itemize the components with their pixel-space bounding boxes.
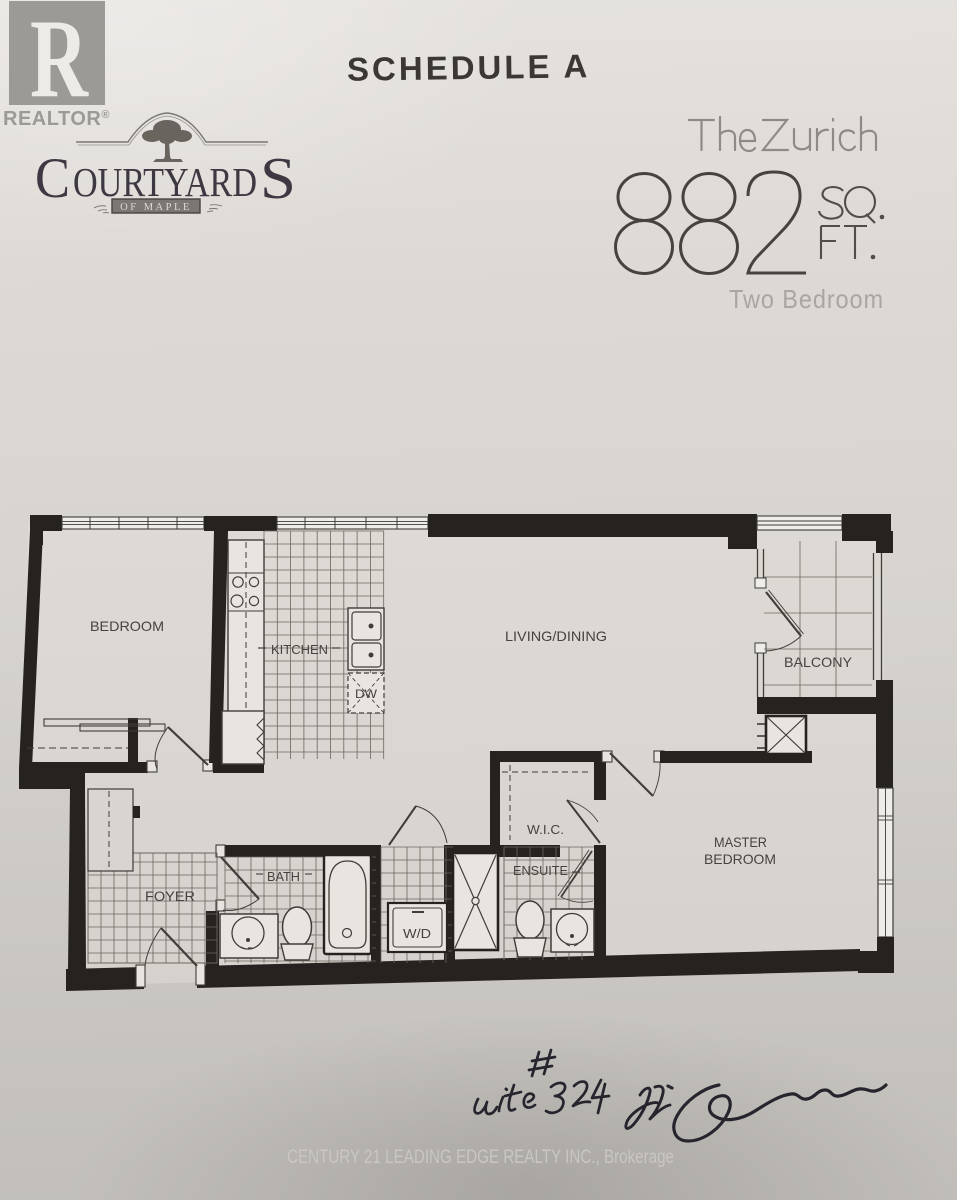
svg-text:BEDROOM: BEDROOM	[90, 618, 164, 634]
svg-text:W/D: W/D	[403, 927, 431, 941]
svg-text:C: C	[35, 147, 70, 210]
svg-text:OF MAPLE: OF MAPLE	[120, 202, 192, 213]
svg-text:CENTURY 21 LEADING EDGE REALTY: CENTURY 21 LEADING EDGE REALTY INC., Bro…	[287, 1146, 674, 1168]
svg-text:BEDROOM: BEDROOM	[704, 851, 776, 867]
svg-text:FOYER: FOYER	[145, 889, 195, 904]
svg-text:KITCHEN: KITCHEN	[271, 642, 328, 657]
svg-text:W.I.C.: W.I.C.	[527, 822, 564, 837]
svg-text:Two Bedroom: Two Bedroom	[729, 284, 884, 314]
svg-text:OURTYARD: OURTYARD	[73, 159, 257, 205]
svg-text:R: R	[30, 1, 89, 105]
svg-text:BATH: BATH	[267, 869, 300, 884]
svg-text:DW: DW	[355, 687, 378, 701]
svg-text:BALCONY: BALCONY	[784, 654, 853, 670]
svg-text:S: S	[260, 145, 296, 211]
svg-text:LIVING/DINING: LIVING/DINING	[505, 628, 607, 644]
svg-text:MASTER: MASTER	[714, 834, 767, 850]
svg-text:ENSUITE: ENSUITE	[513, 864, 568, 878]
